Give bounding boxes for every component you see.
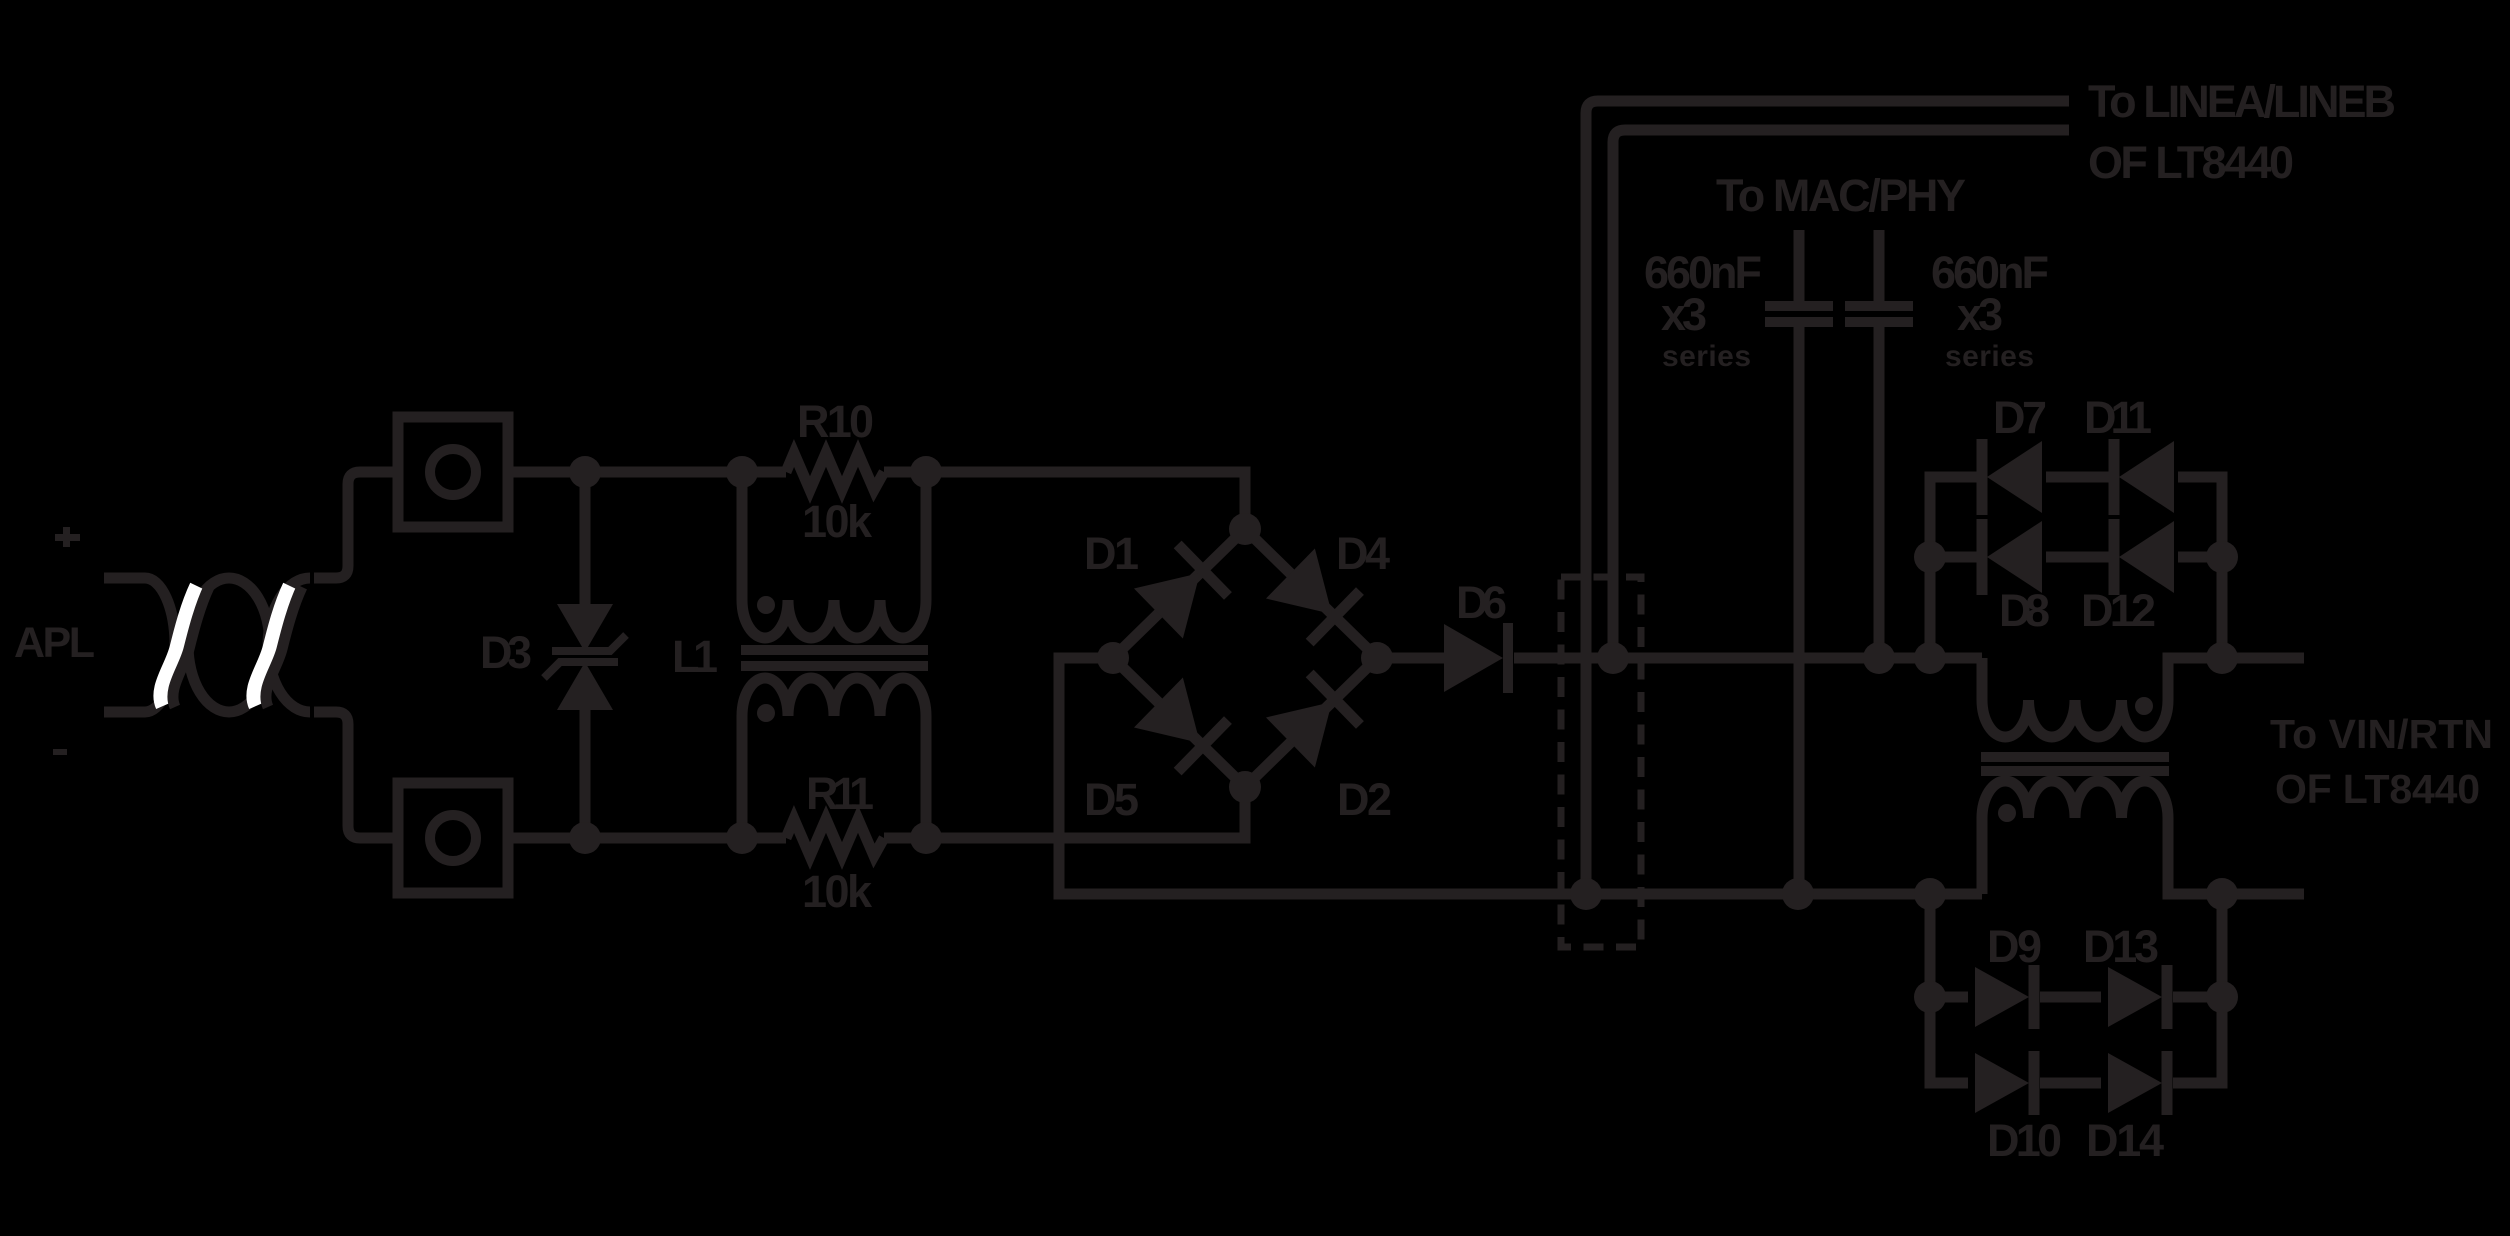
svg-text:D4: D4: [1336, 528, 1390, 579]
svg-text:D10: D10: [1987, 1115, 2062, 1166]
svg-text:D1: D1: [1084, 528, 1139, 579]
svg-text:10k: 10k: [802, 496, 873, 547]
svg-text:APL: APL: [14, 619, 95, 667]
svg-text:OF LT8440: OF LT8440: [2275, 766, 2480, 812]
svg-text:D12: D12: [2081, 585, 2156, 636]
svg-text:D11: D11: [2084, 392, 2152, 443]
svg-text:To MAC/PHY: To MAC/PHY: [1716, 170, 1966, 221]
svg-text:D7: D7: [1993, 392, 2047, 443]
svg-text:D8: D8: [1999, 585, 2050, 636]
svg-text:OF LT8440: OF LT8440: [2088, 137, 2294, 188]
svg-text:x3: x3: [1661, 289, 1707, 340]
svg-text:L1: L1: [672, 631, 718, 682]
svg-text:D6: D6: [1456, 577, 1507, 628]
svg-text:D14: D14: [2086, 1115, 2164, 1166]
svg-text:D2: D2: [1337, 774, 1392, 825]
svg-text:D5: D5: [1084, 774, 1139, 825]
svg-text:D13: D13: [2083, 921, 2159, 972]
svg-text:To LINEA/LINEB: To LINEA/LINEB: [2088, 76, 2396, 127]
svg-text:D9: D9: [1987, 921, 2042, 972]
svg-text:R10: R10: [797, 396, 874, 447]
svg-text:series: series: [1945, 340, 2034, 373]
svg-text:series: series: [1662, 340, 1751, 373]
svg-text:x3: x3: [1957, 289, 2003, 340]
svg-text:10k: 10k: [802, 866, 873, 917]
svg-text:R11: R11: [806, 768, 874, 819]
svg-text:D3: D3: [480, 627, 532, 678]
svg-text:To VIN/RTN: To VIN/RTN: [2270, 711, 2493, 757]
